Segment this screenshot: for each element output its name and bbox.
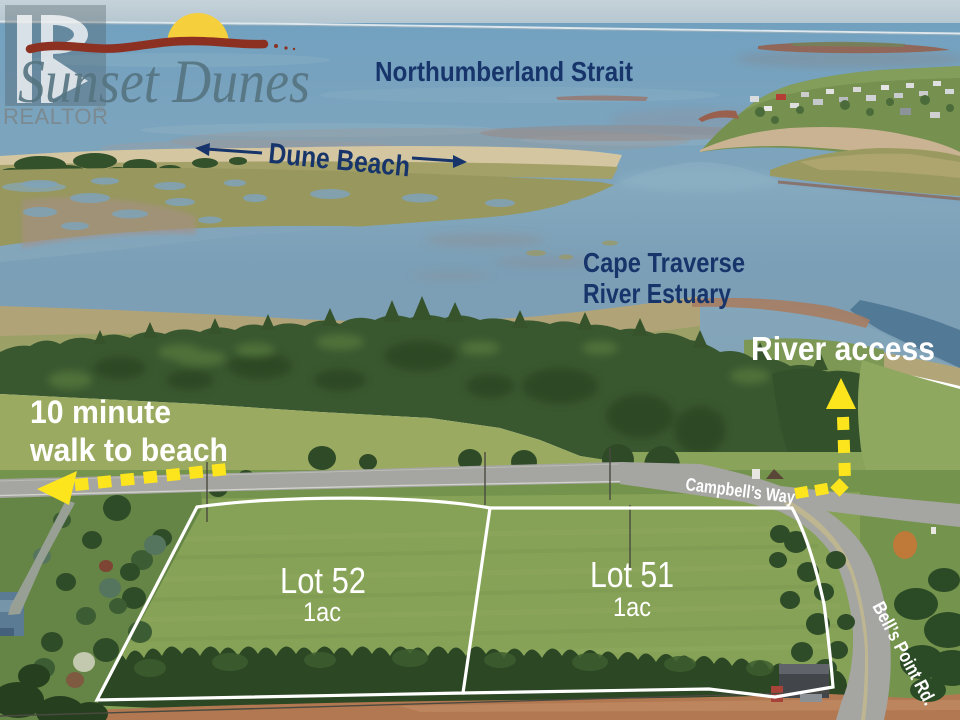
svg-text:Lot 52: Lot 52 [280, 560, 366, 601]
svg-text:walk to beach: walk to beach [29, 432, 228, 468]
svg-text:10 minute: 10 minute [30, 394, 171, 430]
svg-text:1ac: 1ac [303, 597, 341, 627]
svg-text:Lot 51: Lot 51 [590, 554, 674, 595]
svg-text:Cape Traverse: Cape Traverse [583, 247, 745, 278]
svg-text:River access: River access [751, 330, 935, 367]
svg-text:Sunset Dunes: Sunset Dunes [18, 49, 310, 116]
svg-text:1ac: 1ac [613, 592, 651, 622]
svg-text:Northumberland Strait: Northumberland Strait [375, 56, 633, 87]
svg-text:River Estuary: River Estuary [583, 278, 731, 309]
